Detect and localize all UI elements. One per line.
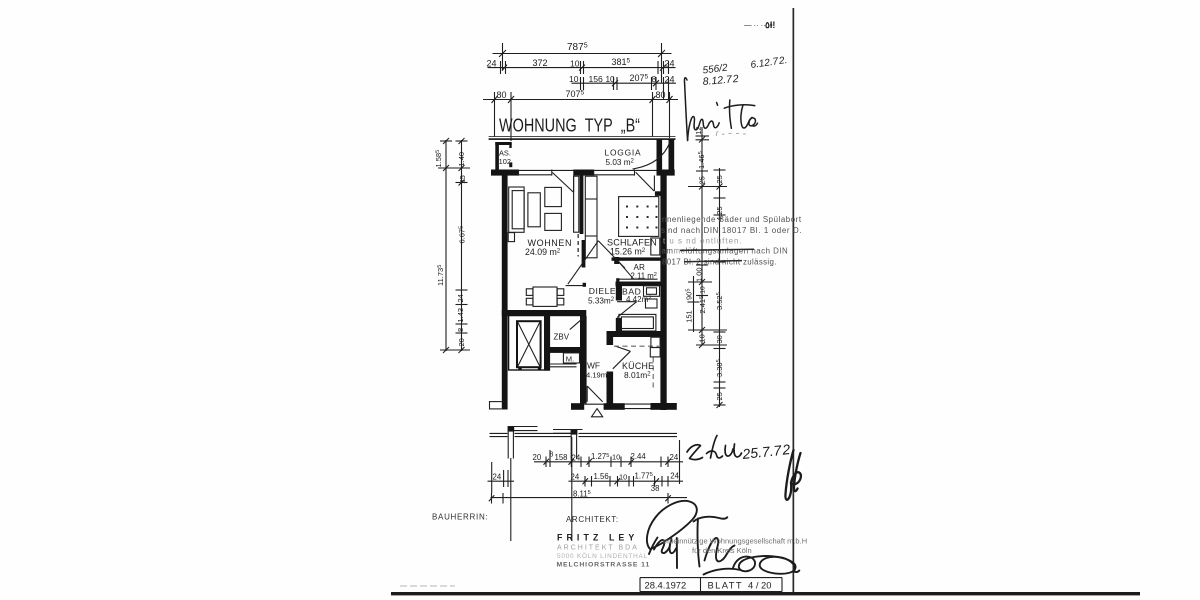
svg-text:― ·· ··: ― ·· ·· <box>744 21 766 30</box>
svg-text:372: 372 <box>533 58 548 68</box>
svg-text:2.11 m2: 2.11 m2 <box>631 271 657 280</box>
svg-text:24: 24 <box>665 59 675 69</box>
svg-text:ARCHITEKT:: ARCHITEKT: <box>566 515 619 524</box>
svg-text:4 / 20: 4 / 20 <box>748 580 771 591</box>
svg-text:151: 151 <box>685 310 694 323</box>
svg-text:10: 10 <box>569 74 579 84</box>
svg-text:1.43: 1.43 <box>456 308 465 323</box>
svg-text:BLATT: BLATT <box>708 580 743 591</box>
svg-text:8017 Bl. 2 sind nicht zulässig: 8017 Bl. 2 sind nicht zulässig. <box>662 258 777 267</box>
svg-text:5.33m2: 5.33m2 <box>588 296 615 305</box>
svg-text:10: 10 <box>570 58 580 68</box>
svg-text:24: 24 <box>456 294 465 302</box>
svg-text:25: 25 <box>458 175 467 183</box>
svg-text:24: 24 <box>670 453 679 462</box>
svg-text:٥Ɨ!: ٥Ɨ! <box>765 20 775 30</box>
svg-text:24: 24 <box>487 59 497 69</box>
svg-text:20: 20 <box>533 453 542 462</box>
svg-text:für den Kreis Köln: für den Kreis Köln <box>692 546 752 555</box>
svg-text:ARCHITEKT BDA: ARCHITEKT BDA <box>557 545 639 552</box>
svg-text:10: 10 <box>619 472 627 481</box>
svg-text:1.56: 1.56 <box>594 472 609 481</box>
svg-text:2.44: 2.44 <box>631 452 647 461</box>
svg-text:8: 8 <box>550 452 554 459</box>
svg-text:emeinnützige Wohnungsgesellsch: emeinnützige Wohnungsgesellschaft m.b.H <box>663 537 807 546</box>
svg-text:1.40: 1.40 <box>457 152 466 167</box>
svg-text:FRITZ LEY: FRITZ LEY <box>557 533 638 543</box>
svg-text:8: 8 <box>456 328 465 332</box>
svg-text:24: 24 <box>670 471 679 480</box>
svg-text:11.735: 11.735 <box>436 265 445 286</box>
svg-text:24: 24 <box>493 472 502 481</box>
svg-text:28.4.1972: 28.4.1972 <box>645 580 687 591</box>
svg-text:38: 38 <box>651 484 660 493</box>
svg-text:8.01m2: 8.01m2 <box>624 370 651 380</box>
svg-text:24: 24 <box>665 74 675 84</box>
svg-text:80: 80 <box>497 90 507 100</box>
svg-text:8: 8 <box>652 74 657 84</box>
svg-text:30: 30 <box>715 335 724 343</box>
svg-text:10: 10 <box>606 75 616 84</box>
svg-text:24: 24 <box>572 454 581 463</box>
svg-text:158: 158 <box>555 453 568 462</box>
svg-text:4.19m2: 4.19m2 <box>586 371 610 380</box>
svg-text:MELCHIORSTRASSE 11: MELCHIORSTRASSE 11 <box>557 562 651 569</box>
svg-text:sind nach DIN 18017 Bl. 1 oder: sind nach DIN 18017 Bl. 1 oder D. <box>661 226 802 235</box>
svg-text:DIELE: DIELE <box>589 286 616 296</box>
svg-text:nnenliegende Bäder und Spülabo: nnenliegende Bäder und Spülabort <box>662 215 802 224</box>
svg-text:M.: M. <box>566 354 574 363</box>
svg-text:LOGGIA: LOGGIA <box>605 148 642 158</box>
svg-text:ZBV: ZBV <box>554 333 570 342</box>
svg-text:BAUHERRIN:: BAUHERRIN: <box>432 513 488 522</box>
svg-text:WF: WF <box>587 361 600 371</box>
svg-text:WOHNUNG TYP „B“: WOHNUNG TYP „B“ <box>499 115 640 136</box>
svg-text:24.09 m2: 24.09 m2 <box>525 247 561 257</box>
svg-text:156: 156 <box>589 74 604 84</box>
svg-text:5.03 m2: 5.03 m2 <box>606 158 635 167</box>
svg-text:t u s nd entlüften.: t u s nd entlüften. <box>663 236 743 245</box>
svg-text:102: 102 <box>499 157 511 166</box>
svg-text:25: 25 <box>715 392 724 400</box>
svg-text:25: 25 <box>698 176 707 184</box>
svg-text:25: 25 <box>715 175 724 183</box>
svg-text:5000 KÖLN LINDENTHAL: 5000 KÖLN LINDENTHAL <box>557 552 648 560</box>
svg-text:10: 10 <box>698 334 707 342</box>
svg-text:10: 10 <box>612 453 620 462</box>
svg-text:20: 20 <box>457 338 466 346</box>
svg-text:15.26 m2: 15.26 m2 <box>610 247 646 257</box>
svg-text:1.00: 1.00 <box>695 267 704 282</box>
svg-text:10: 10 <box>700 286 707 294</box>
